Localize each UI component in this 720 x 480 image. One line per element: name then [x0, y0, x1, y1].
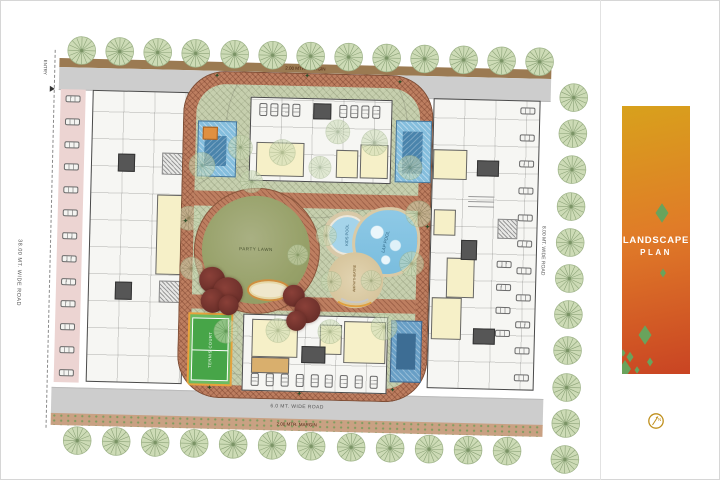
car-icon	[280, 374, 288, 387]
tree-icon	[486, 45, 517, 76]
diamond-sparkle-icon	[656, 203, 669, 223]
tree-icon	[524, 46, 555, 77]
car-icon	[515, 294, 530, 301]
car-icon	[516, 267, 531, 274]
compass-n-label: N	[658, 417, 661, 422]
stair-core	[118, 153, 135, 171]
star-mark-icon: ✦	[424, 224, 430, 231]
amenity-room	[431, 297, 462, 340]
tennis-court-label: TENNIS COURT	[208, 331, 213, 367]
car-icon	[281, 103, 289, 116]
tree-icon	[287, 244, 310, 267]
stair-core	[313, 103, 331, 119]
tree-icon	[370, 313, 399, 342]
car-icon	[496, 261, 511, 268]
car-icon	[514, 347, 529, 354]
car-icon	[65, 95, 80, 102]
tree-icon	[372, 43, 403, 74]
car-icon	[494, 330, 509, 337]
car-icon	[259, 103, 267, 116]
site-plan: ENTRY 38.00 MT. WIDE ROAD 2.00 MTR. MARG…	[7, 21, 598, 473]
parking-bays-right	[512, 107, 537, 381]
clubhouse-building-bottom	[241, 314, 388, 395]
car-icon	[495, 284, 510, 291]
tree-icon	[179, 428, 210, 459]
kids-pool-label: KIDS POOL	[345, 224, 350, 246]
diamond-sparkle-icon	[647, 358, 653, 367]
amenity-room	[446, 258, 475, 299]
car-icon	[61, 278, 76, 285]
party-lawn-label: PARTY LAWN	[239, 247, 273, 252]
car-icon	[515, 321, 530, 328]
tree-icon	[448, 45, 479, 76]
entry-arrow-icon	[50, 86, 55, 92]
entry-label: ENTRY	[42, 60, 47, 75]
stair-core	[477, 160, 499, 177]
car-icon	[60, 301, 75, 308]
car-icon	[517, 241, 532, 248]
car-icon	[265, 373, 273, 386]
car-icon	[340, 375, 348, 388]
tree-icon	[227, 134, 254, 161]
annotation-line	[468, 196, 494, 198]
diamond-sparkle-icon	[635, 366, 640, 374]
tree-icon	[360, 269, 383, 292]
tree-icon	[295, 41, 326, 72]
tree-icon	[333, 42, 364, 73]
banner-subtitle: PLAN	[622, 248, 690, 257]
tree-icon	[558, 82, 589, 113]
diamond-sparkle-icon	[660, 269, 666, 278]
car-icon	[295, 374, 303, 387]
stilt-parking	[259, 103, 300, 117]
car-icon	[62, 255, 77, 262]
tree-icon	[398, 250, 425, 277]
tree-icon	[557, 118, 588, 149]
tree-column-right	[549, 82, 591, 475]
amenity-room	[433, 209, 456, 236]
car-icon	[355, 375, 363, 388]
stilt-parking	[339, 105, 380, 119]
pool-deck	[203, 127, 218, 140]
central-campus: PARTY LAWN KIDS POOL LAP POOL AMPHITHEAT…	[176, 70, 434, 403]
tree-icon	[317, 318, 344, 345]
diamond-sparkle-icon	[622, 349, 626, 357]
residential-building-right	[427, 98, 541, 391]
tree-icon	[557, 155, 588, 186]
tree-icon	[315, 224, 338, 247]
car-icon	[519, 134, 534, 141]
tree-icon	[176, 205, 202, 232]
car-icon	[60, 323, 75, 330]
tree-icon	[374, 433, 405, 464]
tree-icon	[218, 429, 249, 460]
tree-icon	[550, 408, 581, 439]
stair-core	[473, 328, 495, 345]
tree-icon	[105, 36, 136, 67]
tree-icon	[181, 38, 212, 69]
clubhouse-room	[336, 150, 359, 179]
car-icon	[518, 187, 533, 194]
stair-core	[115, 281, 132, 299]
amphitheatre-label: AMPHITHEATRE	[353, 264, 357, 291]
annotation-line	[468, 201, 494, 203]
landscape-plan-banner: LANDSCAPE PLAN	[622, 106, 690, 374]
tree-icon	[268, 138, 297, 167]
car-icon	[339, 105, 347, 118]
parking-strip-left	[54, 89, 86, 383]
diamond-sparkle-icon	[639, 325, 652, 345]
tree-icon	[213, 318, 240, 345]
tree-icon	[296, 431, 327, 462]
car-icon	[517, 214, 532, 221]
lap-pool-label: LAP POOL	[381, 231, 391, 254]
tree-icon	[219, 39, 250, 70]
tree-icon	[188, 151, 217, 180]
car-icon	[361, 105, 369, 118]
star-mark-icon: ✦	[206, 385, 212, 392]
bottom-margin-label: 2.00 MTR. MARGIN	[276, 422, 316, 427]
tree-icon	[239, 169, 264, 194]
car-icon	[372, 106, 380, 119]
car-icon	[370, 376, 378, 389]
diamond-sparkle-icon	[622, 360, 631, 374]
tree-icon	[554, 263, 585, 294]
car-icon	[251, 373, 259, 386]
star-mark-icon: ✦	[389, 387, 395, 394]
tree-icon	[140, 427, 171, 458]
tree-icon	[143, 37, 174, 68]
car-icon	[513, 374, 528, 381]
stair-core	[301, 346, 325, 364]
tree-icon	[453, 435, 484, 466]
annotation-line	[468, 206, 494, 208]
tree-icon	[556, 191, 587, 222]
star-mark-icon: ✦	[214, 73, 220, 80]
stilt-parking	[251, 372, 378, 390]
tree-icon	[101, 426, 132, 457]
tree-icon	[552, 335, 583, 366]
car-icon	[292, 104, 300, 117]
car-icon	[63, 209, 78, 216]
tree-icon	[553, 299, 584, 330]
tree-icon	[257, 430, 288, 461]
star-mark-icon: ✦	[397, 79, 403, 86]
tree-icon	[492, 436, 523, 467]
sheet-divider-line	[600, 0, 601, 480]
diamond-sparkle-icon	[627, 352, 634, 363]
tree-icon	[308, 155, 333, 180]
tree-icon	[555, 227, 586, 258]
tree-icon	[257, 40, 288, 71]
car-icon	[63, 186, 78, 193]
bottom-road-label: 6.0 MT. WIDE ROAD	[270, 404, 324, 410]
car-icon	[495, 307, 510, 314]
car-icon	[519, 161, 534, 168]
tree-icon	[551, 372, 582, 403]
car-icon	[325, 375, 333, 388]
parking-bays-mid	[493, 261, 513, 337]
car-icon	[350, 105, 358, 118]
star-mark-icon: ✦	[183, 218, 189, 225]
car-icon	[62, 232, 77, 239]
court-inner	[396, 333, 416, 369]
car-icon	[270, 103, 278, 116]
north-compass-icon: N	[647, 412, 665, 430]
car-icon	[64, 141, 79, 148]
tree-icon	[325, 119, 352, 146]
tree-icon	[360, 128, 389, 157]
banner-title: LANDSCAPE	[622, 235, 690, 246]
tree-icon	[335, 432, 366, 463]
star-mark-icon: ✦	[304, 73, 310, 80]
tree-icon	[413, 434, 444, 465]
amenity-room	[433, 149, 468, 180]
tree-icon	[66, 35, 97, 66]
car-icon	[520, 107, 535, 114]
residential-building-left	[86, 90, 189, 384]
tree-icon	[62, 425, 93, 456]
car-icon	[310, 374, 318, 387]
stair-core	[461, 240, 477, 260]
car-icon	[65, 118, 80, 125]
left-road-label: 38.00 MT. WIDE ROAD	[14, 239, 21, 306]
tree-icon	[410, 44, 441, 75]
tree-icon	[320, 270, 343, 293]
tree-icon	[550, 444, 581, 475]
star-mark-icon: ✦	[296, 391, 302, 398]
car-icon	[59, 346, 74, 353]
tree-icon	[397, 154, 424, 181]
car-icon	[64, 164, 79, 171]
car-icon	[59, 369, 74, 376]
right-road-label: 8.00 MT. WIDE ROAD	[539, 226, 545, 276]
